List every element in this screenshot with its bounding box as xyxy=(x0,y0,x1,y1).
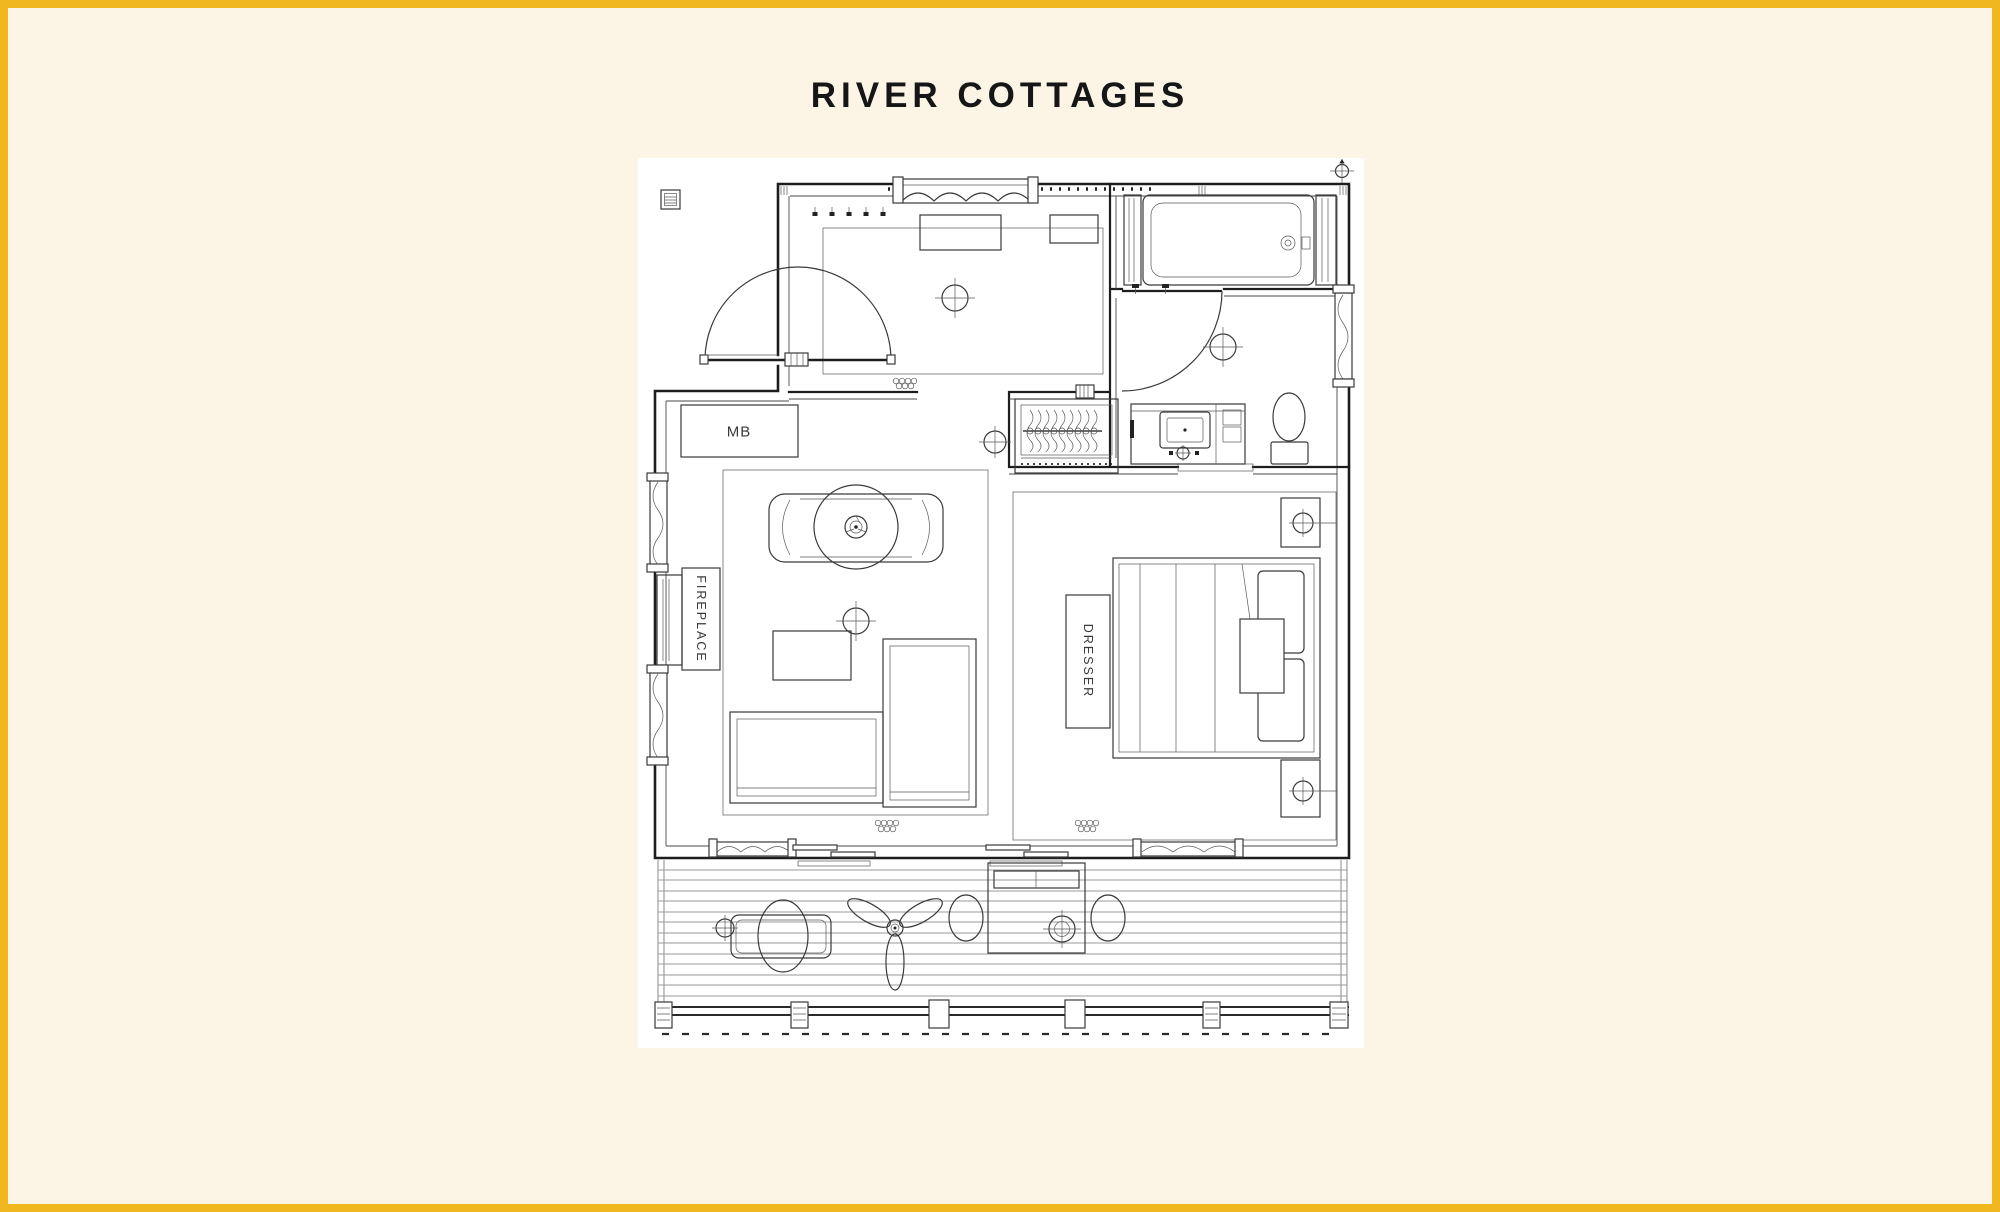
entry-ceiling-light-icon xyxy=(935,278,975,318)
golden-frame: RIVER COTTAGES xyxy=(0,0,2000,1212)
closet xyxy=(1015,399,1118,473)
bedroom-rug xyxy=(1013,492,1336,840)
round-table-with-chairs xyxy=(769,485,943,569)
entry-bench xyxy=(920,215,1001,250)
entry-cabinet xyxy=(1050,215,1098,243)
sill-plant-icon-right xyxy=(1075,820,1099,832)
deck-planter xyxy=(1091,895,1125,941)
bathroom-window xyxy=(1333,285,1354,387)
sectional-sofa xyxy=(730,639,976,807)
dresser: DRESSER xyxy=(1066,595,1110,728)
left-wall-window-upper xyxy=(647,473,668,572)
hall-ceiling-light-icon xyxy=(979,426,1011,458)
vanity-sink xyxy=(1130,404,1245,464)
pocket-door-jamb xyxy=(1076,385,1094,398)
floor-plan-svg: MB FIREPLACE xyxy=(638,158,1364,1048)
bed xyxy=(1113,558,1320,758)
nightstand-upper xyxy=(1281,498,1337,547)
entry-clerestory-window xyxy=(893,177,1038,203)
legend-hatch-icon xyxy=(661,190,680,209)
bathroom xyxy=(1122,195,1354,464)
fireplace-label: FIREPLACE xyxy=(694,575,708,662)
south-window-wavy-right xyxy=(1133,839,1243,857)
deck-railing xyxy=(655,1000,1349,1034)
deck-lounge-chair xyxy=(712,900,831,972)
entry-opening-plant-icon xyxy=(893,378,917,389)
entry-room xyxy=(700,177,1103,389)
coffee-table xyxy=(773,631,851,680)
living-ceiling-light-icon xyxy=(836,601,876,641)
deck-ceiling-fan-icon xyxy=(844,893,947,990)
bedroom: DRESSER xyxy=(1013,492,1337,840)
sill-plant-icon-left xyxy=(875,820,899,832)
deck-table xyxy=(988,863,1085,953)
toilet xyxy=(1271,393,1308,464)
bathtub xyxy=(1124,195,1336,285)
deck-boards xyxy=(658,870,1347,996)
entry-door xyxy=(700,267,895,366)
north-marker-icon xyxy=(1330,159,1354,183)
bathroom-door xyxy=(1122,284,1222,391)
nightstand-lower xyxy=(1281,760,1337,817)
living-room: MB FIREPLACE xyxy=(647,405,988,815)
poster-title: RIVER COTTAGES xyxy=(8,78,1992,113)
coat-hooks xyxy=(813,207,886,216)
deck-stool xyxy=(949,895,983,941)
page-background: RIVER COTTAGES xyxy=(8,8,1992,1204)
south-slider-left xyxy=(793,845,875,866)
living-rug xyxy=(723,470,988,815)
dresser-label: DRESSER xyxy=(1081,624,1095,698)
deck xyxy=(655,860,1349,1034)
south-window-wavy-left xyxy=(709,839,796,857)
mb-label-box: MB xyxy=(681,405,798,457)
floor-plan-sheet: MB FIREPLACE xyxy=(638,158,1364,1048)
fireplace: FIREPLACE xyxy=(657,568,720,670)
bathroom-ceiling-light-icon xyxy=(1203,327,1243,367)
left-wall-window-lower xyxy=(647,665,668,765)
mb-label: MB xyxy=(727,424,752,441)
